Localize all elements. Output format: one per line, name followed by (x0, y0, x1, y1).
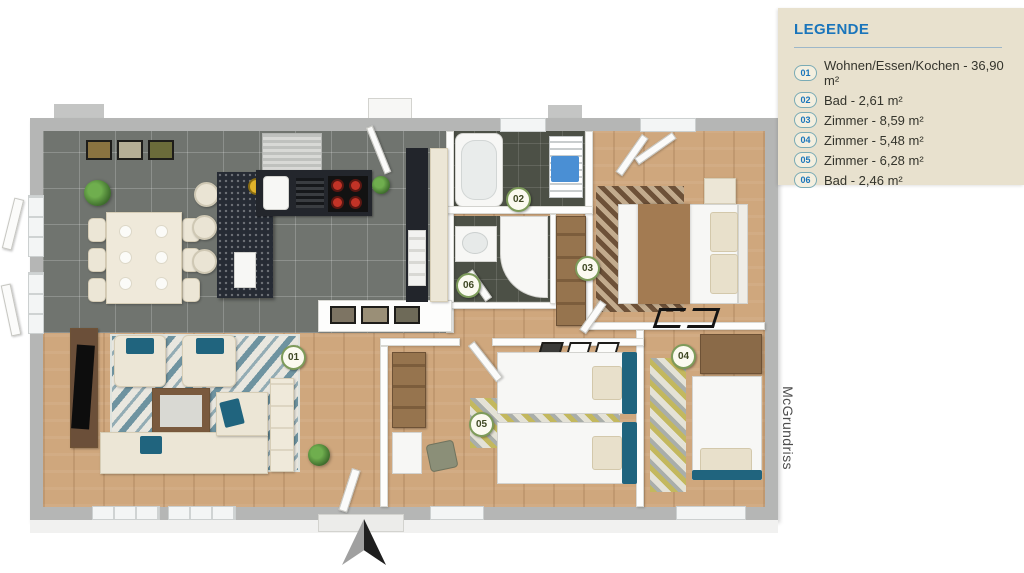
desk (392, 432, 422, 474)
bed-pillow (592, 436, 622, 470)
plate-icon (120, 278, 131, 289)
hallway-frame-icon (361, 306, 389, 324)
legend-item-label: Wohnen/Essen/Kochen - 36,90 m² (824, 58, 1014, 88)
legend-item: 01 Wohnen/Essen/Kochen - 36,90 m² (794, 58, 1014, 88)
legend-num-badge: 06 (794, 172, 817, 188)
window (28, 272, 44, 334)
wall-art-icon (148, 140, 174, 160)
legend-num-badge: 02 (794, 92, 817, 108)
legend-item: 03 Zimmer - 8,59 m² (794, 112, 1014, 128)
window (168, 506, 236, 520)
burner-icon (351, 181, 360, 190)
legend-num-badge: 05 (794, 152, 817, 168)
legend-item-label: Zimmer - 8,59 m² (824, 113, 924, 128)
wall-bath-bedroom03 (585, 131, 593, 330)
desk-chair (425, 439, 458, 472)
plate-icon (120, 252, 131, 263)
legend-item: 06 Bad - 2,46 m² (794, 172, 1014, 188)
outer-wall-face (30, 520, 778, 533)
legend-panel: LEGENDE 01 Wohnen/Essen/Kochen - 36,90 m… (778, 8, 1024, 185)
bed-pillow (710, 212, 738, 252)
dining-chair (88, 278, 106, 302)
window (92, 506, 160, 520)
plant-icon (308, 444, 330, 466)
nightstand (704, 178, 736, 204)
room-badge-04: 04 (671, 344, 696, 369)
legend-num-badge: 03 (794, 112, 817, 128)
wall-art-icon (86, 140, 112, 160)
bed-blanket (638, 204, 690, 304)
dining-chair (88, 248, 106, 272)
wall-bath06-south (446, 302, 558, 309)
plant-icon (372, 176, 390, 194)
bathtub-basin (461, 140, 497, 200)
legend-num-badge: 01 (794, 65, 817, 81)
bar-stool (194, 182, 219, 207)
plant-icon (84, 180, 111, 206)
wall-room05-west (380, 346, 388, 507)
bed-accent-teal (622, 422, 637, 484)
bar-stool (192, 249, 217, 274)
window (500, 118, 546, 132)
legend-divider (794, 47, 1002, 48)
window (430, 506, 484, 520)
bed-pillow (592, 366, 622, 400)
hallway-frame-icon (394, 306, 420, 324)
coffee-table-glass (160, 395, 202, 427)
plate-icon (156, 252, 167, 263)
legend-title: LEGENDE (794, 21, 1014, 38)
room-badge-03: 03 (575, 256, 600, 281)
room-badge-06: 06 (456, 273, 481, 298)
sink-basin (462, 232, 488, 254)
dining-chair (88, 218, 106, 242)
room-04-rug (650, 358, 686, 492)
wall-art-icon (117, 140, 143, 160)
window-leaf (2, 198, 24, 251)
plate-icon (120, 226, 131, 237)
bed-accent-teal (692, 470, 762, 480)
window (676, 506, 746, 520)
room-badge-02: 02 (506, 187, 531, 212)
dining-chair (182, 278, 200, 302)
headboard (738, 204, 748, 304)
plate-icon (156, 278, 167, 289)
built-in-oven (408, 230, 426, 286)
kitchen-window-blinds (262, 133, 322, 171)
window (640, 118, 696, 132)
room-badge-01: 01 (281, 345, 306, 370)
wardrobe (392, 352, 426, 428)
bed-accent-teal (622, 352, 637, 414)
wall-room04-west (636, 330, 644, 507)
serving-tray (234, 252, 256, 288)
legend-item-label: Zimmer - 6,28 m² (824, 153, 924, 168)
watermark: McGrundriss (780, 378, 796, 478)
kitchen-sink (263, 176, 289, 210)
sideboard (270, 378, 294, 472)
kitchen-grill (296, 178, 324, 208)
legend-item: 04 Zimmer - 5,48 m² (794, 132, 1014, 148)
legend-item-label: Bad - 2,46 m² (824, 173, 903, 188)
bed-pillow (710, 254, 738, 294)
burner-icon (351, 198, 360, 207)
wall-room05-north-a (380, 338, 460, 346)
pillow-teal (140, 436, 162, 454)
pillow-teal (196, 338, 224, 354)
floorplan-screenshot: 01 02 03 04 05 06 McGrundriss LEGENDE 01… (0, 0, 1024, 573)
north-arrow-icon (342, 519, 386, 565)
dining-table (106, 212, 182, 304)
legend-item-label: Bad - 2,61 m² (824, 93, 903, 108)
wardrobe (700, 334, 762, 374)
legend-item-label: Zimmer - 5,48 m² (824, 133, 924, 148)
towel-blue (551, 156, 579, 182)
room-badge-05: 05 (469, 412, 494, 437)
plate-icon (156, 226, 167, 237)
kitchen-tall-cabinet (430, 148, 448, 302)
legend-item: 05 Zimmer - 6,28 m² (794, 152, 1014, 168)
window-leaf (1, 284, 22, 337)
burner-icon (333, 181, 342, 190)
window (28, 195, 44, 257)
legend-num-badge: 04 (794, 132, 817, 148)
bar-stool (192, 215, 217, 240)
burner-icon (333, 198, 342, 207)
hallway-frame-icon (330, 306, 356, 324)
pillow-teal (126, 338, 154, 354)
legend-item: 02 Bad - 2,61 m² (794, 92, 1014, 108)
sofa (100, 432, 268, 474)
